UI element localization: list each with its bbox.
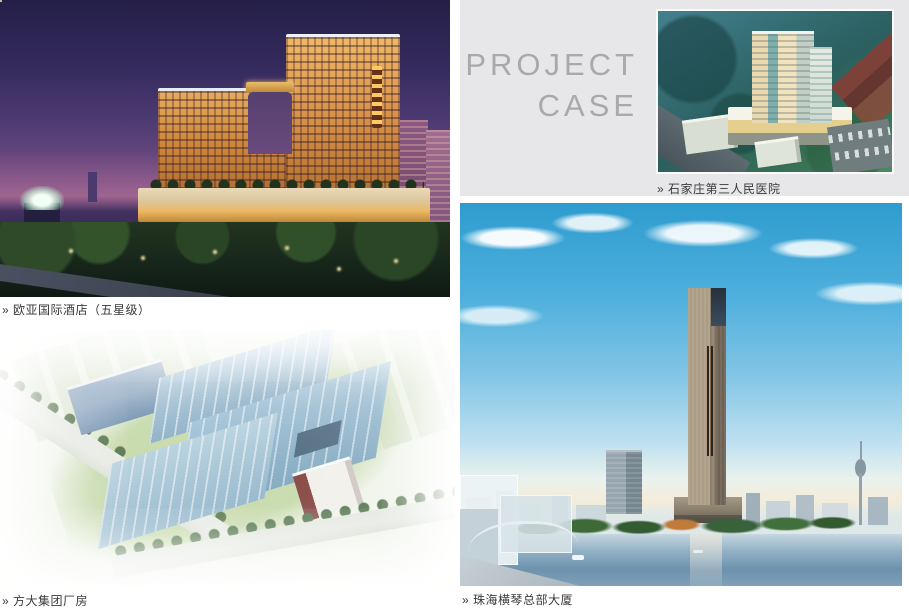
- main-tower-light-slot: [707, 346, 713, 456]
- tower-reflection: [690, 534, 722, 586]
- hotel-arch-sign: [246, 82, 294, 92]
- main-tower-glass-notch: [711, 288, 726, 326]
- hospital-annex-building: [754, 136, 801, 168]
- page-title-line2: CASE: [460, 85, 638, 126]
- page-title: PROJECT CASE: [460, 44, 638, 126]
- caption-factory: » 方大集团厂房: [2, 592, 88, 609]
- hospital-tower-wing: [810, 47, 832, 123]
- hospital-parking-lot: [827, 119, 894, 174]
- macau-tower-spire: [860, 441, 862, 459]
- secondary-tower: [606, 450, 642, 514]
- hotel-vertical-sign: [372, 66, 382, 128]
- tower-clouds: [460, 211, 902, 361]
- hotel-right-wing: [286, 34, 400, 198]
- factory-photo: [0, 330, 455, 586]
- main-tower: [688, 288, 726, 505]
- caption-hospital: » 石家庄第三人民医院: [657, 180, 781, 197]
- hotel-distant-tower: [88, 172, 97, 202]
- project-case-page: » 欧亚国际酒店（五星级） » 方大集团厂房 PROJECT CASE » 石: [0, 0, 909, 614]
- hospital-photo: [656, 9, 894, 174]
- page-title-line1: PROJECT: [460, 44, 638, 85]
- caption-hotel: » 欧亚国际酒店（五星级）: [2, 301, 151, 318]
- tower-photo: [460, 203, 902, 586]
- hotel-arch-opening: [248, 92, 292, 154]
- hotel-street-lamps: [0, 0, 2, 2]
- hotel-photo: [0, 0, 450, 297]
- boat: [572, 555, 584, 560]
- hotel-podium: [138, 188, 430, 222]
- hotel-crown-light: [20, 186, 64, 210]
- factory-white-vignette: [0, 330, 455, 586]
- caption-tower: » 珠海横琴总部大厦: [462, 591, 573, 608]
- hospital-main-tower: [752, 31, 814, 123]
